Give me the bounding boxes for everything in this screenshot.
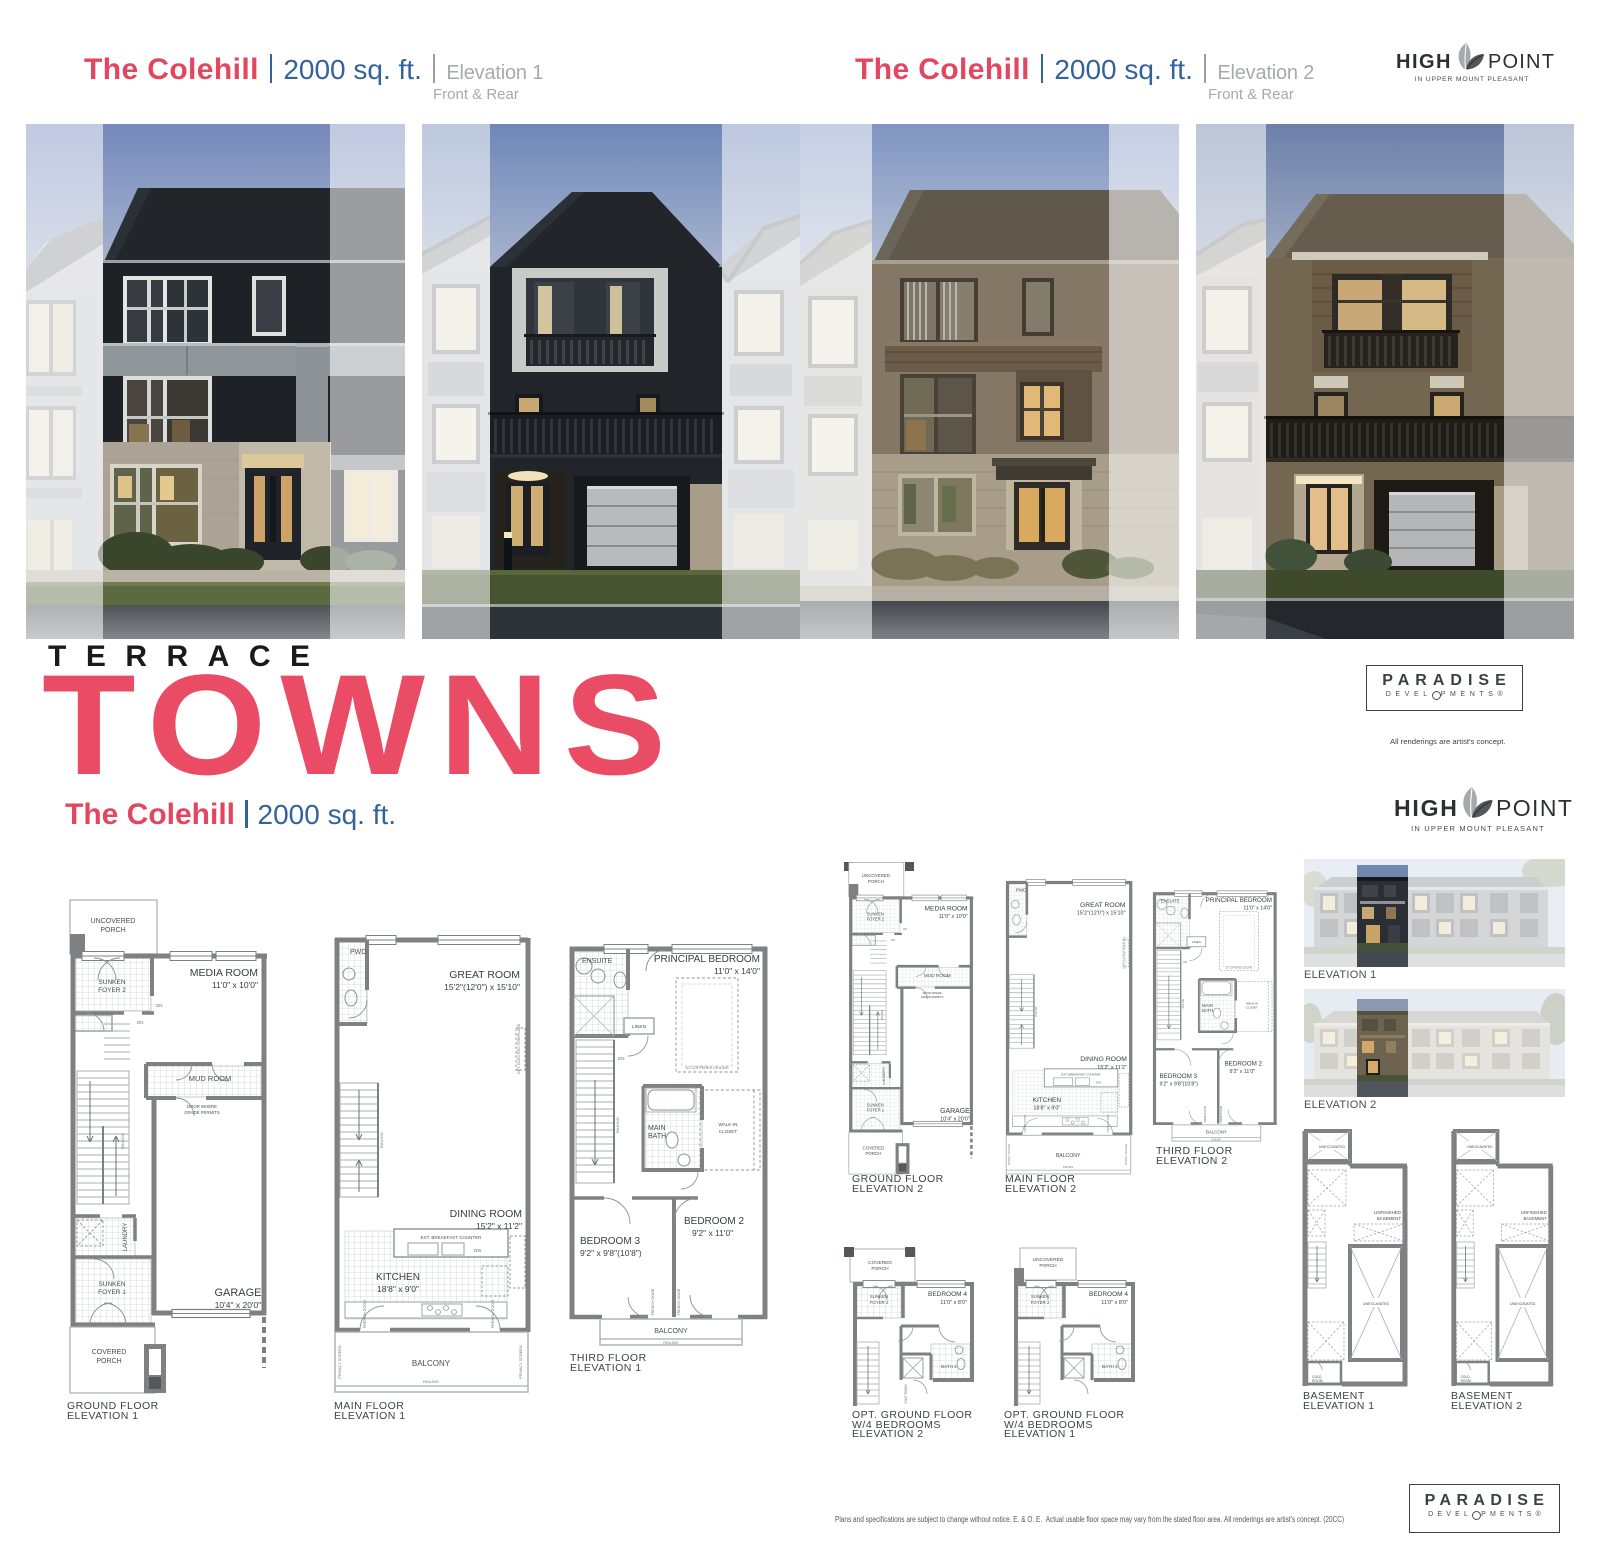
svg-text:10' COFFERED CEILING: 10' COFFERED CEILING [685, 1066, 728, 1070]
svg-text:FRENCH DOOR: FRENCH DOOR [491, 1300, 495, 1329]
svg-text:PORCH: PORCH [871, 1266, 889, 1272]
svg-text:COVERED: COVERED [92, 1349, 127, 1356]
svg-text:SUNKEN: SUNKEN [1031, 1294, 1049, 1299]
svg-text:11'0" x 10'0": 11'0" x 10'0" [212, 980, 258, 990]
svg-text:11'0" x 8'0": 11'0" x 8'0" [940, 1300, 967, 1306]
svg-text:FRENCH DOOR: FRENCH DOOR [677, 1288, 681, 1315]
svg-text:FOYER 2: FOYER 2 [1031, 1300, 1050, 1305]
svg-text:MUD ROOM: MUD ROOM [189, 1074, 232, 1083]
svg-text:DW: DW [474, 1248, 482, 1253]
svg-text:15'2"(12'0") x 15'10": 15'2"(12'0") x 15'10" [444, 982, 520, 992]
svg-text:RAILING: RAILING [615, 1117, 620, 1133]
svg-text:9'2" x 11'0": 9'2" x 11'0" [692, 1228, 733, 1238]
svg-text:DN: DN [156, 1003, 163, 1008]
svg-text:EXT. BREAKFAST COUNTER: EXT. BREAKFAST COUNTER [421, 1235, 482, 1240]
svg-text:18'8" x 9'0": 18'8" x 9'0" [377, 1284, 419, 1294]
svg-text:COVERED: COVERED [868, 1260, 892, 1266]
svg-text:HIGH: HIGH [1396, 51, 1452, 73]
svg-text:UNFINISHED: UNFINISHED [1374, 1210, 1401, 1215]
svg-text:11'0" x 14'0": 11'0" x 14'0" [714, 966, 760, 976]
svg-text:UNEXCAVATED: UNEXCAVATED [1363, 1302, 1390, 1306]
svg-text:BASEMENT: BASEMENT [1377, 1216, 1401, 1221]
svg-text:PORCH: PORCH [96, 1358, 121, 1365]
svg-text:HIGH: HIGH [1394, 795, 1459, 821]
svg-text:OPT. ELECTRIC FIREPLACE: OPT. ELECTRIC FIREPLACE [517, 1023, 521, 1074]
svg-text:POINT: POINT [1488, 51, 1555, 73]
svg-text:LAUNDRY: LAUNDRY [123, 1223, 129, 1252]
svg-text:COAT ROOM: COAT ROOM [904, 1384, 908, 1404]
svg-text:CLOSET: CLOSET [719, 1129, 738, 1134]
svg-text:LINEN: LINEN [632, 1024, 647, 1030]
svg-text:DINING ROOM: DINING ROOM [450, 1208, 522, 1220]
svg-text:11'0" x 8'0": 11'0" x 8'0" [1101, 1300, 1128, 1306]
svg-text:FOYER 2: FOYER 2 [98, 987, 126, 994]
svg-text:MEDIA ROOM: MEDIA ROOM [190, 967, 258, 979]
svg-text:KITCHEN: KITCHEN [376, 1272, 420, 1283]
svg-text:10'4" x 20'0": 10'4" x 20'0" [215, 1300, 262, 1310]
svg-text:UNCOVERED: UNCOVERED [91, 918, 136, 925]
svg-text:IN UPPER MOUNT PLEASANT: IN UPPER MOUNT PLEASANT [1411, 824, 1545, 833]
svg-text:15'2" x 11'2": 15'2" x 11'2" [476, 1221, 522, 1231]
svg-text:BATH 2: BATH 2 [941, 1364, 957, 1369]
svg-text:BEDROOM 4: BEDROOM 4 [928, 1291, 967, 1298]
svg-text:FOYER 2: FOYER 2 [870, 1300, 889, 1305]
svg-text:POINT: POINT [1496, 795, 1573, 821]
svg-text:PWD: PWD [350, 949, 366, 956]
svg-text:BATH 2: BATH 2 [1102, 1364, 1118, 1369]
svg-text:PRIVACY SCREEN: PRIVACY SCREEN [338, 1345, 342, 1378]
svg-text:9'2" x 9'8"(10'8"): 9'2" x 9'8"(10'8") [580, 1248, 642, 1258]
svg-text:PORCH: PORCH [100, 927, 125, 934]
svg-text:GRADE PERMITS: GRADE PERMITS [184, 1110, 220, 1115]
svg-text:ENSUITE: ENSUITE [582, 958, 613, 965]
svg-text:RAILING: RAILING [379, 1132, 384, 1148]
svg-text:GARAGE: GARAGE [214, 1287, 261, 1299]
svg-text:BEDROOM 3: BEDROOM 3 [580, 1236, 640, 1247]
svg-text:FOYER 1: FOYER 1 [98, 1289, 126, 1296]
svg-text:BEDROOM 4: BEDROOM 4 [1089, 1291, 1128, 1298]
svg-text:ROOM: ROOM [1312, 1379, 1323, 1383]
svg-text:SUNKEN: SUNKEN [870, 1294, 888, 1299]
svg-text:BEDROOM 2: BEDROOM 2 [684, 1216, 744, 1227]
svg-text:BATH: BATH [648, 1133, 666, 1140]
svg-text:WALK-IN: WALK-IN [719, 1122, 738, 1127]
svg-text:BALCONY: BALCONY [412, 1359, 451, 1368]
svg-text:IN UPPER MOUNT PLEASANT: IN UPPER MOUNT PLEASANT [1415, 76, 1530, 83]
svg-text:FRENCH DOOR: FRENCH DOOR [363, 1300, 367, 1329]
svg-text:RAILING: RAILING [423, 1379, 439, 1384]
svg-text:UNEXCAVATED: UNEXCAVATED [1319, 1145, 1346, 1149]
svg-text:SUNKEN: SUNKEN [98, 979, 125, 986]
svg-text:PRIVACY SCREEN: PRIVACY SCREEN [519, 1345, 523, 1378]
svg-text:BALCONY: BALCONY [654, 1328, 688, 1335]
svg-text:PRINCIPAL BEDROOM: PRINCIPAL BEDROOM [654, 954, 760, 965]
svg-text:MAIN: MAIN [648, 1125, 666, 1132]
svg-text:RAILING: RAILING [663, 1341, 678, 1345]
svg-text:DN: DN [137, 1020, 144, 1025]
svg-text:DOOR WHERE: DOOR WHERE [187, 1104, 217, 1109]
svg-text:PORCH: PORCH [1039, 1263, 1057, 1269]
svg-text:UNCOVERED: UNCOVERED [1033, 1257, 1064, 1263]
svg-text:SUNKEN: SUNKEN [98, 1281, 125, 1288]
svg-text:RAILING: RAILING [120, 1133, 125, 1149]
svg-text:DN: DN [618, 1056, 625, 1061]
svg-text:FRENCH DOOR: FRENCH DOOR [651, 1288, 655, 1315]
svg-text:GREAT ROOM: GREAT ROOM [449, 969, 520, 981]
